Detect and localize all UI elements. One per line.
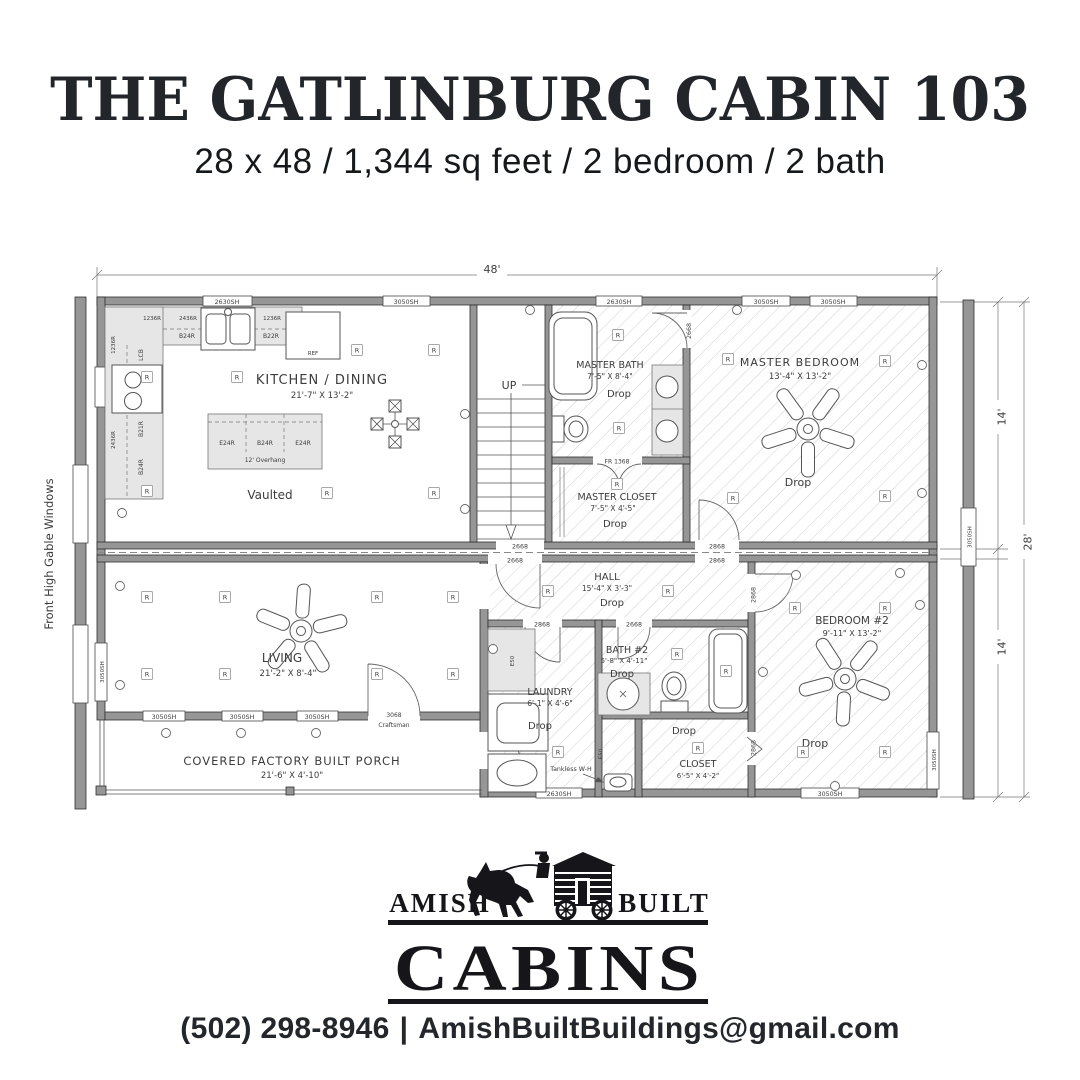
svg-text:Drop: Drop <box>672 726 696 737</box>
door-label: 2668 <box>512 544 528 551</box>
dim-48: 48' <box>483 263 500 276</box>
door-label: 2868 <box>709 544 725 551</box>
svg-text:Drop: Drop <box>610 669 634 680</box>
svg-text:R: R <box>375 670 380 678</box>
door-label: Craftsman <box>378 722 409 729</box>
phone-number: (502) 298-8946 <box>180 1012 389 1045</box>
svg-text:1236R: 1236R <box>263 316 281 322</box>
svg-text:B22R: B22R <box>263 333 279 340</box>
svg-text:R: R <box>556 748 561 756</box>
window-label: 3050SH <box>230 714 255 721</box>
svg-text:R: R <box>883 357 888 365</box>
svg-text:R: R <box>883 748 888 756</box>
svg-text:R: R <box>355 346 360 354</box>
svg-text:R: R <box>375 593 380 601</box>
svg-text:R: R <box>696 744 701 752</box>
cabinet-label: E50 <box>510 655 516 666</box>
svg-text:E24R: E24R <box>295 440 311 447</box>
svg-text:KITCHEN / DINING: KITCHEN / DINING <box>256 373 388 388</box>
svg-text:R: R <box>451 670 456 678</box>
svg-text:R: R <box>546 587 551 595</box>
svg-text:7'-5" X 8'-4": 7'-5" X 8'-4" <box>587 372 632 381</box>
svg-text:2436R: 2436R <box>111 431 117 449</box>
dim-28: 28' <box>1022 533 1035 550</box>
svg-text:Drop: Drop <box>785 476 811 489</box>
svg-text:MASTER BATH: MASTER BATH <box>576 360 643 371</box>
svg-text:E24R: E24R <box>219 440 235 447</box>
svg-text:1236R: 1236R <box>111 336 117 354</box>
svg-text:BEDROOM #2: BEDROOM #2 <box>815 615 889 627</box>
door-label: 2868 <box>709 558 725 565</box>
svg-text:7'-5" X 4'-5": 7'-5" X 4'-5" <box>590 504 635 513</box>
svg-text:13'-4" X 13'-2": 13'-4" X 13'-2" <box>769 372 831 382</box>
svg-text:R: R <box>617 424 622 432</box>
door-label: FR 1368 <box>605 459 630 466</box>
gable-note: Front High Gable Windows <box>42 478 56 629</box>
door-label: 2868 <box>751 587 758 603</box>
svg-text:R: R <box>883 604 888 612</box>
logo-amish: AMISH <box>389 888 491 918</box>
svg-text:21'-2" X 8'-4": 21'-2" X 8'-4" <box>260 669 317 679</box>
svg-text:5'-8" X 4'-11": 5'-8" X 4'-11" <box>601 657 648 665</box>
window-label: 2630SH <box>607 299 632 306</box>
svg-text:R: R <box>726 355 731 363</box>
svg-text:R: R <box>616 331 621 339</box>
door-label: 2668 <box>507 558 523 565</box>
svg-text:R: R <box>235 373 240 381</box>
svg-text:15'-4" X 3'-3": 15'-4" X 3'-3" <box>582 584 632 593</box>
window-label: 3050SH <box>394 299 419 306</box>
window-label: 3050SH <box>968 526 974 548</box>
svg-text:R: R <box>145 670 150 678</box>
door-label: 2668 <box>626 622 642 629</box>
window-label: 3050SH <box>818 791 843 798</box>
svg-text:R: R <box>145 593 150 601</box>
svg-text:R: R <box>325 489 330 497</box>
page-title: THE GATLINBURG CABIN 103 <box>0 64 1080 134</box>
svg-text:R: R <box>793 604 798 612</box>
svg-text:R: R <box>432 489 437 497</box>
stairs-up-label: UP <box>502 379 517 392</box>
cabinet-label: E50 <box>599 748 605 759</box>
dim-14-top: 14' <box>996 408 1009 425</box>
svg-text:MASTER CLOSET: MASTER CLOSET <box>577 492 656 503</box>
svg-text:R: R <box>223 670 228 678</box>
amish-built-cabins-logo: AMISH BUILT CABINS <box>368 850 728 1008</box>
page-subtitle: 28 x 48 / 1,344 sq feet / 2 bedroom / 2 … <box>0 142 1080 182</box>
svg-text:R: R <box>724 667 729 675</box>
svg-text:R: R <box>615 480 620 488</box>
svg-text:21'-7" X 13'-2": 21'-7" X 13'-2" <box>291 391 353 401</box>
wagon-wheel-icon <box>556 900 577 921</box>
svg-text:9'-11" X 13'-2": 9'-11" X 13'-2" <box>823 629 882 638</box>
svg-text:LAUNDRY: LAUNDRY <box>527 687 572 698</box>
svg-text:REF: REF <box>308 351 318 357</box>
window-label: 2630SH <box>547 791 572 798</box>
svg-text:LIVING: LIVING <box>262 651 302 665</box>
kitchen-fixtures <box>105 307 419 499</box>
svg-text:B24R: B24R <box>257 440 273 447</box>
door-label: 2668 <box>686 323 693 339</box>
svg-text:R: R <box>145 373 150 381</box>
svg-text:Drop: Drop <box>607 389 631 400</box>
logo-built: BUILT <box>618 888 710 918</box>
door-label: 3068 <box>386 712 401 719</box>
separator: | <box>390 1012 419 1045</box>
window-label: 2630SH <box>215 299 240 306</box>
window-label: 3050SH <box>305 714 330 721</box>
svg-text:B24R: B24R <box>138 459 145 475</box>
svg-text:R: R <box>432 346 437 354</box>
poster: THE GATLINBURG CABIN 103 28 x 48 / 1,344… <box>0 0 1080 1080</box>
stairs: UP <box>477 379 545 539</box>
room-label-porch: COVERED FACTORY BUILT PORCH 21'-6" X 4'-… <box>183 754 400 781</box>
svg-text:R: R <box>451 593 456 601</box>
logo-cabins: CABINS <box>394 932 704 1005</box>
window-label: 3050SH <box>152 714 177 721</box>
dim-14-bottom: 14' <box>996 638 1009 655</box>
svg-text:Drop: Drop <box>603 519 627 530</box>
svg-text:2436R: 2436R <box>179 316 197 322</box>
door-label: 2868 <box>534 622 550 629</box>
window-label: 3050SH <box>932 749 938 771</box>
svg-text:R: R <box>223 593 228 601</box>
svg-text:B24R: B24R <box>179 333 195 340</box>
svg-text:6'-5" X 4'-2": 6'-5" X 4'-2" <box>677 772 719 780</box>
svg-text:Vaulted: Vaulted <box>247 488 292 502</box>
svg-text:R: R <box>675 650 680 658</box>
window-label: 3050SH <box>821 299 846 306</box>
svg-text:R: R <box>883 492 888 500</box>
svg-text:R: R <box>145 487 150 495</box>
window-label: 3050SH <box>100 661 106 683</box>
svg-text:B21R: B21R <box>138 421 145 437</box>
svg-text:LCB: LCB <box>138 349 145 361</box>
svg-text:HALL: HALL <box>594 572 620 583</box>
svg-text:COVERED FACTORY BUILT PORCH: COVERED FACTORY BUILT PORCH <box>183 754 400 768</box>
svg-text:R: R <box>731 494 736 502</box>
svg-text:Drop: Drop <box>528 721 552 732</box>
svg-text:6'-1" X 4'-6": 6'-1" X 4'-6" <box>527 699 572 708</box>
svg-text:21'-6" X 4'-10": 21'-6" X 4'-10" <box>261 771 323 781</box>
svg-text:Tankless W-H: Tankless W-H <box>549 766 592 773</box>
svg-text:R: R <box>801 748 806 756</box>
svg-text:MASTER BEDROOM: MASTER BEDROOM <box>740 356 860 369</box>
svg-text:R: R <box>666 587 671 595</box>
contact-bar: (502) 298-8946|AmishBuiltBuildings@gmail… <box>0 1012 1080 1046</box>
svg-text:12' Overhang: 12' Overhang <box>245 457 286 464</box>
svg-text:BATH #2: BATH #2 <box>606 645 648 656</box>
svg-text:Drop: Drop <box>600 598 624 609</box>
kitchen-ceiling-light <box>371 400 419 448</box>
svg-text:CLOSET: CLOSET <box>680 759 717 770</box>
wagon-wheel-icon <box>592 900 613 921</box>
svg-text:1236R: 1236R <box>143 316 161 322</box>
window-label: 3050SH <box>754 299 779 306</box>
floor-plan: 48' 14' 14' 28' 3050SH Front High Gable … <box>30 252 1050 852</box>
email-address: AmishBuiltBuildings@gmail.com <box>418 1012 899 1045</box>
